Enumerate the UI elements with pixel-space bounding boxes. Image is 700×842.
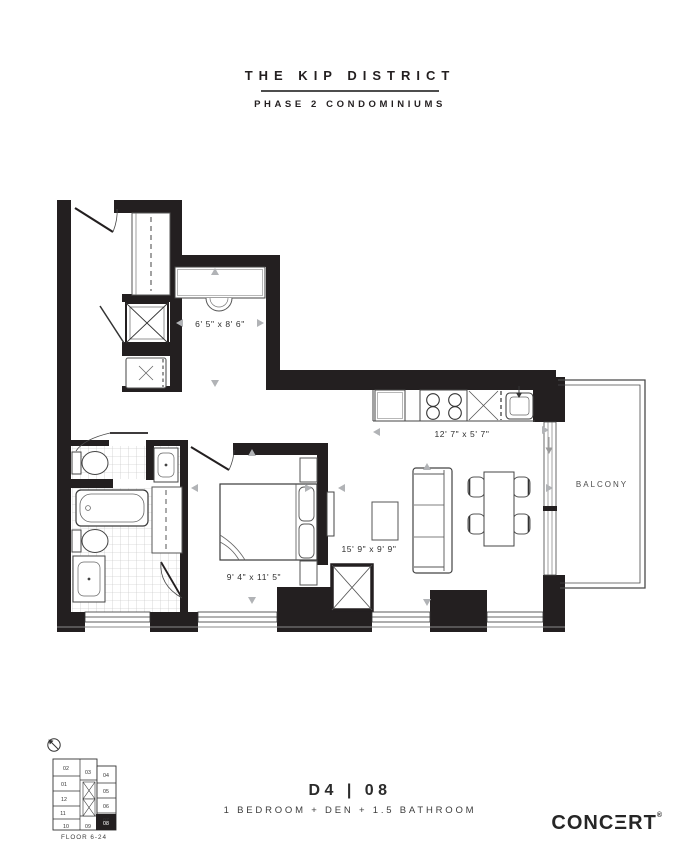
keyplan-unit: 03 <box>85 770 91 776</box>
tv-console <box>327 492 334 536</box>
keyplan-unit: 02 <box>63 766 69 772</box>
brand-stylized-e: Ξ <box>614 812 628 834</box>
key-plan: 02 03 04 01 05 12 06 11 07 10 09 08 FLOO… <box>53 759 116 841</box>
nightstand <box>300 561 317 585</box>
bed <box>220 484 317 560</box>
kitchen-dimension: 12' 7" x 5' 7" <box>434 429 489 439</box>
dining-set <box>468 472 530 546</box>
brand-text-pre: CONC <box>551 812 614 834</box>
bedroom-dimension: 9' 4" x 11' 5" <box>227 572 281 582</box>
bathtub <box>76 490 148 526</box>
den-desk <box>175 267 265 311</box>
foyer-closet <box>132 213 170 295</box>
unit-code: D4 | 08 <box>0 782 700 800</box>
coffee-table <box>372 502 398 540</box>
registered-mark: ® <box>657 812 662 819</box>
bedroom-door <box>191 447 234 470</box>
nightstand <box>300 458 317 482</box>
keyplan-unit: 10 <box>63 824 69 830</box>
sofa <box>413 468 452 573</box>
washer-dryer <box>100 303 168 343</box>
living-dimension: 15' 9" x 9' 9" <box>341 544 396 554</box>
floor-plan-svg: BALCONY 6' 5" x 8' 6" 12' 7" x 5' 7" 15'… <box>0 0 700 842</box>
mechanical-shaft <box>332 565 372 610</box>
keyplan-unit: 04 <box>103 773 109 779</box>
bathroom-toilet <box>72 530 108 553</box>
stove <box>420 390 467 421</box>
compass-icon <box>48 739 60 751</box>
bathroom-vanity <box>73 556 105 602</box>
mech-closet <box>126 358 166 388</box>
den-dimension: 6' 5" x 8' 6" <box>195 319 245 329</box>
keyplan-unit: 09 <box>85 824 91 830</box>
entry-door <box>75 208 117 232</box>
brand-text-post: RT <box>628 812 657 834</box>
balcony: BALCONY <box>558 380 645 588</box>
balcony-label: BALCONY <box>576 480 628 489</box>
concert-logo: CONCΞRT® <box>551 812 662 835</box>
fridge <box>375 390 405 421</box>
dishwasher <box>469 391 501 420</box>
floorplan-page: { "page": {"width": 700, "height": 842, … <box>0 0 700 842</box>
keyplan-unit-08: 08 <box>103 821 109 827</box>
kitchen-sink <box>506 386 533 419</box>
keyplan-caption: FLOOR 6-24 <box>61 834 107 841</box>
balcony-door <box>543 422 557 575</box>
